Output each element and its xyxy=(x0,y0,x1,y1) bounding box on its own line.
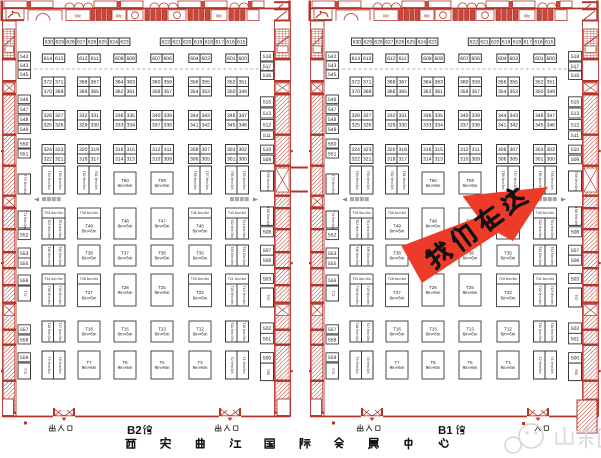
svg-text:346: 346 xyxy=(239,122,248,128)
svg-text:9m×6m: 9m×6m xyxy=(426,290,441,295)
svg-text:6m×6m: 6m×6m xyxy=(82,332,97,337)
svg-text:T43 6m×3m: T43 6m×3m xyxy=(228,211,246,215)
svg-text:367: 367 xyxy=(399,79,408,85)
svg-text:366: 366 xyxy=(387,89,396,95)
svg-text:513: 513 xyxy=(263,111,272,117)
svg-text:347: 347 xyxy=(239,113,248,119)
svg-text:353: 353 xyxy=(510,89,519,95)
svg-text:348: 348 xyxy=(535,113,544,119)
svg-text:346: 346 xyxy=(547,122,556,128)
svg-text:T25: T25 xyxy=(158,285,166,290)
svg-text:325: 325 xyxy=(44,122,53,128)
svg-text:T27: T27 xyxy=(393,290,401,295)
svg-text:B1: B1 xyxy=(438,425,453,437)
svg-text:332: 332 xyxy=(387,113,396,119)
svg-text:T55 9m×3m: T55 9m×3m xyxy=(242,171,246,190)
svg-text:624: 624 xyxy=(418,40,427,46)
svg-text:620: 620 xyxy=(491,40,500,46)
svg-text:334: 334 xyxy=(127,122,136,128)
svg-text:313: 313 xyxy=(127,156,136,162)
svg-text:T61 9m×3m: T61 9m×3m xyxy=(94,171,98,190)
svg-text:370: 370 xyxy=(352,89,361,95)
svg-text:352: 352 xyxy=(227,79,236,85)
svg-text:363: 363 xyxy=(435,79,444,85)
svg-text:T73: T73 xyxy=(23,368,27,374)
svg-text:T56 9m×3m: T56 9m×3m xyxy=(230,171,234,190)
svg-text:357: 357 xyxy=(164,89,173,95)
svg-text:T69 9m×3m: T69 9m×3m xyxy=(266,172,270,191)
svg-text:559: 559 xyxy=(20,355,29,361)
svg-text:6m×6m: 6m×6m xyxy=(155,256,170,261)
svg-text:328: 328 xyxy=(352,113,361,119)
svg-text:T6: T6 xyxy=(430,360,436,365)
svg-text:306: 306 xyxy=(498,156,507,162)
svg-text:302: 302 xyxy=(547,147,556,153)
svg-text:359: 359 xyxy=(472,79,481,85)
svg-text:372: 372 xyxy=(352,79,361,85)
svg-text:306: 306 xyxy=(190,156,199,162)
svg-text:330: 330 xyxy=(91,122,100,128)
svg-text:312: 312 xyxy=(152,147,161,153)
svg-text:545: 545 xyxy=(20,72,29,78)
svg-text:T38: T38 xyxy=(393,250,401,255)
svg-text:611: 611 xyxy=(399,56,407,62)
svg-text:6m×6m: 6m×6m xyxy=(426,332,441,337)
svg-text:T60: T60 xyxy=(429,178,437,183)
svg-text:503: 503 xyxy=(571,276,580,282)
svg-text:616: 616 xyxy=(534,40,543,46)
svg-text:Wc: Wc xyxy=(116,13,123,18)
svg-text:302: 302 xyxy=(239,147,248,153)
svg-text:T49: T49 xyxy=(85,223,93,228)
svg-text:337: 337 xyxy=(460,122,469,128)
svg-text:555: 555 xyxy=(20,261,29,267)
svg-text:330: 330 xyxy=(399,122,408,128)
svg-text:T28 6m×3m: T28 6m×3m xyxy=(80,277,98,281)
svg-text:508: 508 xyxy=(263,230,272,236)
svg-text:507: 507 xyxy=(571,248,580,254)
svg-text:336: 336 xyxy=(423,113,432,119)
svg-text:9m×6m: 9m×6m xyxy=(426,365,441,370)
svg-text:Wc: Wc xyxy=(524,13,531,18)
svg-text:360: 360 xyxy=(152,79,161,85)
svg-text:553: 553 xyxy=(328,251,337,257)
svg-text:T71 6m×3m: T71 6m×3m xyxy=(331,210,335,229)
svg-text:548: 548 xyxy=(20,117,29,123)
svg-text:350: 350 xyxy=(227,89,236,95)
svg-text:549: 549 xyxy=(20,127,29,133)
svg-text:518: 518 xyxy=(263,54,272,60)
svg-text:606: 606 xyxy=(164,56,173,62)
svg-text:501: 501 xyxy=(571,336,580,342)
svg-text:371: 371 xyxy=(363,79,372,85)
svg-text:627: 627 xyxy=(77,40,86,46)
svg-text:620: 620 xyxy=(183,40,192,46)
svg-text:339: 339 xyxy=(472,113,481,119)
svg-text:317: 317 xyxy=(91,156,100,162)
svg-text:301: 301 xyxy=(535,156,544,162)
svg-text:T19 9m×3m: T19 9m×3m xyxy=(242,286,246,305)
svg-text:543: 543 xyxy=(20,63,29,69)
svg-text:T63 9m×3m: T63 9m×3m xyxy=(58,171,62,190)
svg-text:315: 315 xyxy=(127,147,136,153)
svg-text:325: 325 xyxy=(352,122,361,128)
svg-text:502: 502 xyxy=(263,326,272,332)
svg-text:516: 516 xyxy=(263,73,272,79)
svg-text:333: 333 xyxy=(115,122,124,128)
svg-text:551: 551 xyxy=(20,151,29,157)
svg-text:359: 359 xyxy=(164,79,173,85)
svg-text:T55 9m×3m: T55 9m×3m xyxy=(550,171,554,190)
svg-text:335: 335 xyxy=(127,113,136,119)
svg-text:515: 515 xyxy=(571,100,580,106)
svg-text:T51 6m×3m: T51 6m×3m xyxy=(58,219,62,238)
svg-text:T13: T13 xyxy=(158,326,166,331)
svg-text:336: 336 xyxy=(115,113,124,119)
svg-text:T29 6m×3m: T29 6m×3m xyxy=(58,286,62,305)
svg-text:623: 623 xyxy=(120,40,129,46)
svg-text:550: 550 xyxy=(20,141,29,147)
svg-text:T35: T35 xyxy=(504,250,512,255)
svg-text:T11 6m×3m: T11 6m×3m xyxy=(538,322,542,341)
svg-text:600: 600 xyxy=(547,56,556,62)
svg-text:T64 9m×3m: T64 9m×3m xyxy=(355,171,359,190)
svg-text:324: 324 xyxy=(352,147,361,153)
svg-text:305: 305 xyxy=(510,156,519,162)
svg-text:622: 622 xyxy=(470,40,479,46)
svg-text:356: 356 xyxy=(190,79,199,85)
svg-text:T40 6m×3m: T40 6m×3m xyxy=(47,246,51,265)
svg-text:618: 618 xyxy=(513,40,522,46)
svg-text:9m×6m: 9m×6m xyxy=(155,365,170,370)
svg-text:T20 9m×3m: T20 9m×3m xyxy=(230,286,234,305)
svg-text:510: 510 xyxy=(571,147,580,153)
svg-text:340: 340 xyxy=(460,113,469,119)
svg-text:T22: T22 xyxy=(504,290,512,295)
svg-text:623: 623 xyxy=(428,40,437,46)
svg-text:617: 617 xyxy=(524,40,533,46)
svg-text:548: 548 xyxy=(328,117,337,123)
svg-text:T59: T59 xyxy=(158,178,166,183)
svg-text:372: 372 xyxy=(44,79,53,85)
svg-text:314: 314 xyxy=(115,156,124,162)
svg-text:619: 619 xyxy=(194,40,203,46)
svg-text:621: 621 xyxy=(172,40,181,46)
svg-text:T47: T47 xyxy=(158,218,166,223)
svg-text:Wc: Wc xyxy=(75,13,82,18)
svg-text:T72: T72 xyxy=(23,290,27,296)
svg-text:T45: T45 xyxy=(196,223,204,228)
svg-text:368: 368 xyxy=(79,79,88,85)
svg-text:547: 547 xyxy=(20,107,29,113)
svg-text:604: 604 xyxy=(190,56,199,62)
svg-text:322: 322 xyxy=(352,156,361,162)
svg-text:364: 364 xyxy=(423,79,432,85)
svg-text:603: 603 xyxy=(202,56,211,62)
svg-text:9m×6m: 9m×6m xyxy=(501,365,516,370)
svg-text:506: 506 xyxy=(571,258,580,264)
svg-text:9m×6m: 9m×6m xyxy=(118,365,133,370)
svg-text:T26: T26 xyxy=(121,285,129,290)
svg-text:629: 629 xyxy=(364,40,373,46)
svg-text:347: 347 xyxy=(547,113,556,119)
svg-text:303: 303 xyxy=(227,147,236,153)
svg-text:T66: T66 xyxy=(574,369,578,375)
svg-text:311: 311 xyxy=(164,147,172,153)
svg-text:351: 351 xyxy=(239,79,248,85)
svg-text:628: 628 xyxy=(374,40,383,46)
svg-text:334: 334 xyxy=(435,122,444,128)
svg-text:315: 315 xyxy=(435,147,444,153)
svg-text:512: 512 xyxy=(571,122,580,128)
svg-text:9m×6m: 9m×6m xyxy=(463,365,478,370)
svg-text:T72: T72 xyxy=(331,290,335,296)
svg-text:T59: T59 xyxy=(466,178,474,183)
svg-text:300: 300 xyxy=(239,156,248,162)
svg-text:T71 6m×3m: T71 6m×3m xyxy=(23,210,27,229)
svg-text:301: 301 xyxy=(227,156,236,162)
svg-text:T56 9m×3m: T56 9m×3m xyxy=(538,171,542,190)
svg-text:328: 328 xyxy=(44,113,53,119)
svg-text:T25: T25 xyxy=(466,285,474,290)
svg-text:T19 9m×3m: T19 9m×3m xyxy=(550,286,554,305)
svg-text:Wc: Wc xyxy=(383,13,390,18)
svg-text:6m×6m: 6m×6m xyxy=(82,256,97,261)
svg-text:320: 320 xyxy=(387,147,396,153)
svg-text:356: 356 xyxy=(498,79,507,85)
svg-text:T28 6m×3m: T28 6m×3m xyxy=(388,277,406,281)
svg-text:612: 612 xyxy=(387,56,396,62)
svg-text:313: 313 xyxy=(435,156,444,162)
svg-text:365: 365 xyxy=(399,89,408,95)
svg-text:9m×6m: 9m×6m xyxy=(193,365,208,370)
svg-text:6m×6m: 6m×6m xyxy=(501,332,516,337)
svg-text:T6: T6 xyxy=(122,360,128,365)
svg-text:326: 326 xyxy=(55,122,64,128)
svg-text:371: 371 xyxy=(55,79,64,85)
svg-text:353: 353 xyxy=(202,89,211,95)
svg-text:T53 6m×3m: T53 6m×3m xyxy=(44,211,62,215)
svg-text:T33 6m×3m: T33 6m×3m xyxy=(538,246,542,265)
svg-text:9m×6m: 9m×6m xyxy=(463,290,478,295)
svg-text:619: 619 xyxy=(502,40,511,46)
svg-text:T23 6m×3m: T23 6m×3m xyxy=(499,277,517,281)
svg-text:355: 355 xyxy=(510,79,519,85)
svg-text:T42 6m×3m: T42 6m×3m xyxy=(538,219,542,238)
svg-text:T13: T13 xyxy=(466,326,474,331)
svg-text:T31 6m×3m: T31 6m×3m xyxy=(352,277,370,281)
svg-text:T15: T15 xyxy=(429,326,437,331)
svg-text:T73: T73 xyxy=(331,368,335,374)
svg-text:T23 6m×3m: T23 6m×3m xyxy=(191,277,209,281)
svg-text:508: 508 xyxy=(571,230,580,236)
svg-text:615: 615 xyxy=(545,40,554,46)
svg-text:509: 509 xyxy=(263,157,272,163)
svg-text:T39 6m×3m: T39 6m×3m xyxy=(366,246,370,265)
svg-text:T10 6m×3m: T10 6m×3m xyxy=(242,322,246,341)
svg-text:606: 606 xyxy=(472,56,481,62)
svg-text:340: 340 xyxy=(152,113,161,119)
svg-text:617: 617 xyxy=(216,40,225,46)
svg-text:T15: T15 xyxy=(121,326,129,331)
svg-text:T38: T38 xyxy=(85,250,93,255)
svg-text:510: 510 xyxy=(263,147,272,153)
svg-text:T18 6m×3m: T18 6m×3m xyxy=(355,322,359,341)
svg-text:547: 547 xyxy=(328,107,337,113)
svg-text:317: 317 xyxy=(399,156,408,162)
svg-text:327: 327 xyxy=(363,113,372,119)
svg-text:511: 511 xyxy=(263,133,271,139)
svg-text:369: 369 xyxy=(363,89,372,95)
svg-text:552: 552 xyxy=(20,232,29,238)
svg-text:352: 352 xyxy=(535,79,544,85)
svg-text:T33 6m×3m: T33 6m×3m xyxy=(230,246,234,265)
svg-text:343: 343 xyxy=(510,113,519,119)
svg-text:332: 332 xyxy=(79,113,88,119)
svg-text:362: 362 xyxy=(423,89,432,95)
svg-text:608: 608 xyxy=(435,56,444,62)
svg-text:T3: T3 xyxy=(505,360,511,365)
svg-text:323: 323 xyxy=(363,147,372,153)
svg-text:329: 329 xyxy=(79,122,88,128)
svg-text:337: 337 xyxy=(152,122,161,128)
svg-text:607: 607 xyxy=(460,56,469,62)
svg-text:308: 308 xyxy=(190,147,199,153)
svg-text:T32 6m×3m: T32 6m×3m xyxy=(242,246,246,265)
svg-text:365: 365 xyxy=(91,89,100,95)
svg-text:6m×6m: 6m×6m xyxy=(193,229,208,234)
svg-text:368: 368 xyxy=(387,79,396,85)
svg-text:T41 6m×3m: T41 6m×3m xyxy=(550,219,554,238)
svg-text:366: 366 xyxy=(79,89,88,95)
svg-text:9m×6m: 9m×6m xyxy=(118,224,133,229)
svg-text:T18 6m×3m: T18 6m×3m xyxy=(47,322,51,341)
svg-text:T5: T5 xyxy=(467,360,473,365)
svg-text:6m×6m: 6m×6m xyxy=(390,296,405,301)
svg-text:546: 546 xyxy=(328,97,337,103)
svg-text:T40 6m×3m: T40 6m×3m xyxy=(355,246,359,265)
svg-text:338: 338 xyxy=(472,122,481,128)
svg-text:320: 320 xyxy=(79,147,88,153)
svg-text:327: 327 xyxy=(55,113,64,119)
svg-text:625: 625 xyxy=(407,40,416,46)
svg-text:604: 604 xyxy=(498,56,507,62)
svg-text:615: 615 xyxy=(237,40,246,46)
svg-text:T26: T26 xyxy=(429,285,437,290)
svg-text:626: 626 xyxy=(88,40,97,46)
svg-text:342: 342 xyxy=(202,122,211,128)
svg-text:363: 363 xyxy=(127,79,136,85)
svg-text:T48: T48 xyxy=(429,218,437,223)
svg-text:357: 357 xyxy=(472,89,481,95)
svg-text:511: 511 xyxy=(571,133,579,139)
svg-text:310: 310 xyxy=(460,156,469,162)
svg-text:T68 6m×3m: T68 6m×3m xyxy=(574,207,578,226)
svg-text:T66: T66 xyxy=(266,369,270,375)
svg-text:612: 612 xyxy=(79,56,88,62)
svg-text:331: 331 xyxy=(91,113,100,119)
svg-text:T11 6m×3m: T11 6m×3m xyxy=(230,322,234,341)
svg-text:T8 9m×3m: T8 9m×3m xyxy=(366,357,370,374)
svg-text:614: 614 xyxy=(44,56,53,62)
svg-text:316: 316 xyxy=(423,147,432,153)
svg-text:341: 341 xyxy=(498,122,507,128)
svg-text:546: 546 xyxy=(20,97,29,103)
svg-text:609: 609 xyxy=(423,56,432,62)
svg-text:503: 503 xyxy=(263,276,272,282)
svg-text:300: 300 xyxy=(547,156,556,162)
svg-text:6m×6m: 6m×6m xyxy=(501,256,516,261)
svg-text:314: 314 xyxy=(423,156,432,162)
svg-text:354: 354 xyxy=(190,89,199,95)
svg-text:500: 500 xyxy=(571,356,580,362)
svg-text:557: 557 xyxy=(20,327,29,333)
svg-text:551: 551 xyxy=(328,151,337,157)
svg-text:556: 556 xyxy=(20,278,29,284)
svg-text:T2 9m×3m: T2 9m×3m xyxy=(538,357,542,374)
svg-text:515: 515 xyxy=(263,100,272,106)
svg-text:358: 358 xyxy=(460,89,469,95)
svg-text:T52 6m×3m: T52 6m×3m xyxy=(47,219,51,238)
svg-text:550: 550 xyxy=(328,141,337,147)
svg-text:310: 310 xyxy=(152,156,161,162)
svg-text:349: 349 xyxy=(547,89,556,95)
svg-text:T9 9m×3m: T9 9m×3m xyxy=(47,357,51,374)
svg-text:T60: T60 xyxy=(121,178,129,183)
svg-text:T46 6m×3m: T46 6m×3m xyxy=(191,211,209,215)
svg-text:T7: T7 xyxy=(394,360,400,365)
svg-text:T69 9m×3m: T69 9m×3m xyxy=(574,172,578,191)
svg-text:T5: T5 xyxy=(159,360,165,365)
svg-text:333: 333 xyxy=(423,122,432,128)
svg-text:T70 9m×3m: T70 9m×3m xyxy=(23,175,27,194)
svg-text:Wc: Wc xyxy=(216,13,223,18)
svg-text:T62 9m×3m: T62 9m×3m xyxy=(82,171,86,190)
svg-text:T63 9m×3m: T63 9m×3m xyxy=(366,171,370,190)
svg-text:T27: T27 xyxy=(85,290,93,295)
svg-text:628: 628 xyxy=(66,40,75,46)
svg-text:307: 307 xyxy=(510,147,519,153)
svg-text:6m×6m: 6m×6m xyxy=(193,296,208,301)
svg-text:329: 329 xyxy=(387,122,396,128)
svg-text:358: 358 xyxy=(152,89,161,95)
svg-text:614: 614 xyxy=(352,56,361,62)
svg-text:T30 6m×3m: T30 6m×3m xyxy=(355,286,359,305)
svg-text:T53 6m×3m: T53 6m×3m xyxy=(352,211,370,215)
svg-text:601: 601 xyxy=(227,56,236,62)
svg-text:542: 542 xyxy=(328,54,337,60)
svg-text:6m×6m: 6m×6m xyxy=(82,229,97,234)
svg-text:T42 6m×3m: T42 6m×3m xyxy=(230,219,234,238)
svg-text:367: 367 xyxy=(91,79,100,85)
svg-text:556: 556 xyxy=(328,278,337,284)
svg-text:6m×6m: 6m×6m xyxy=(193,256,208,261)
svg-text:542: 542 xyxy=(20,54,29,60)
svg-text:627: 627 xyxy=(385,40,394,46)
svg-text:507: 507 xyxy=(263,248,272,254)
svg-text:T70 9m×3m: T70 9m×3m xyxy=(331,175,335,194)
svg-text:600: 600 xyxy=(239,56,248,62)
svg-text:T8 9m×3m: T8 9m×3m xyxy=(58,357,62,374)
svg-text:Wc: Wc xyxy=(424,13,431,18)
svg-text:303: 303 xyxy=(535,147,544,153)
svg-text:T51 6m×3m: T51 6m×3m xyxy=(366,219,370,238)
svg-text:B2: B2 xyxy=(127,425,142,437)
svg-text:T37: T37 xyxy=(121,250,129,255)
svg-text:T57 9m×3m: T57 9m×3m xyxy=(513,171,517,190)
svg-text:T16: T16 xyxy=(85,326,93,331)
svg-text:9m×6m: 9m×6m xyxy=(426,224,441,229)
